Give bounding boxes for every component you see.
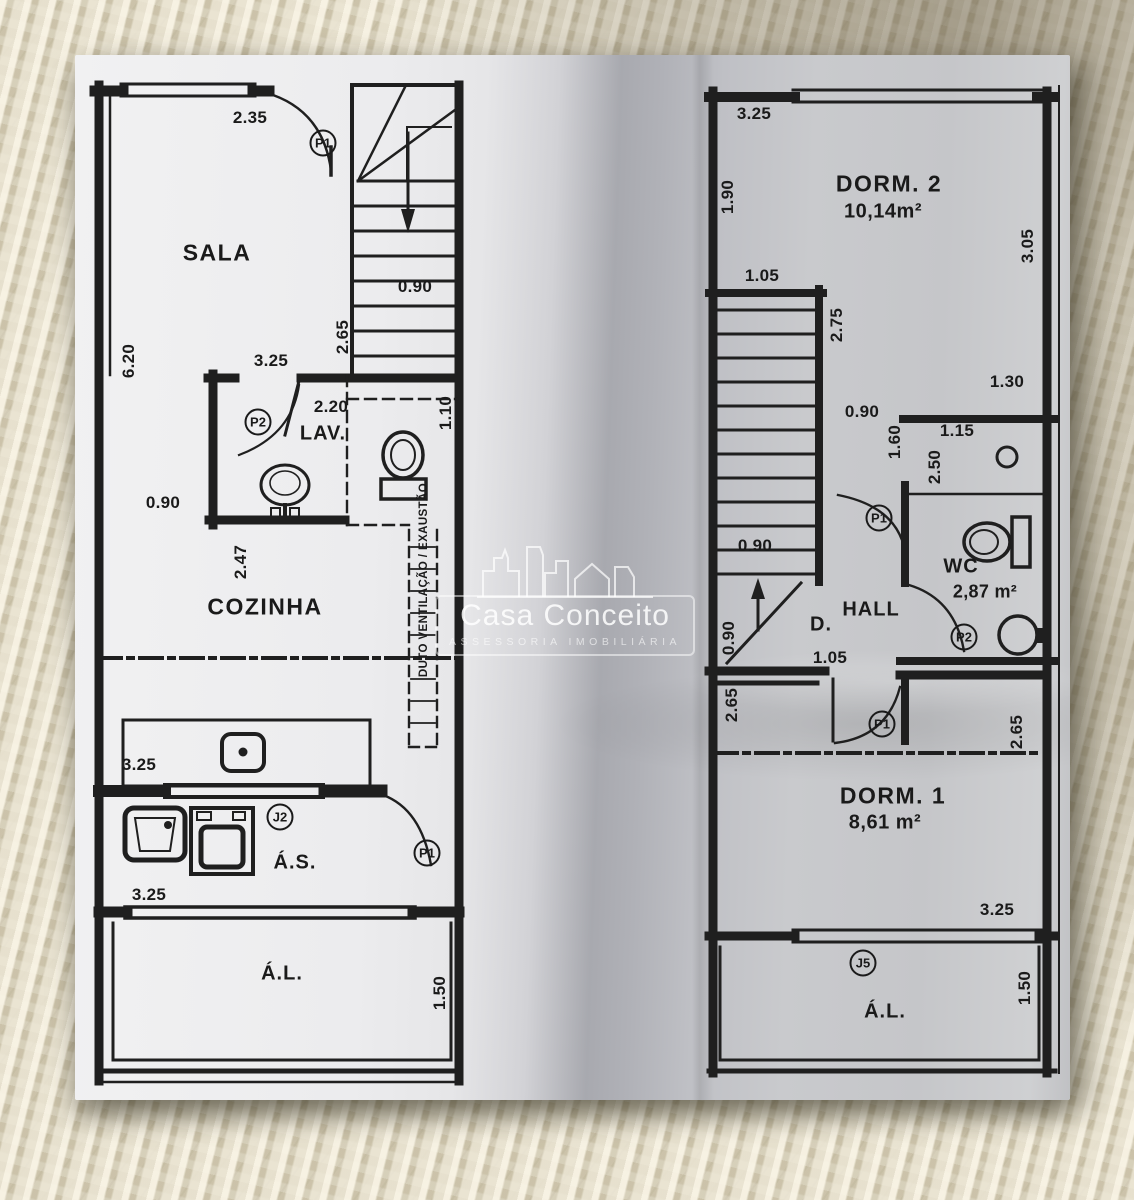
dim-sala-top: 2.35 (233, 108, 267, 128)
dim-lav-width: 2.20 (314, 397, 348, 417)
room-label-al: Á.L. (261, 963, 303, 986)
outer-walls (709, 85, 1059, 1073)
room-label-dorm1: DORM. 1 (840, 783, 946, 810)
stairs-down (352, 85, 459, 375)
watermark: Casa Conceito ASSESSORIA IMOBILIÁRIA (435, 535, 695, 656)
service-window (99, 907, 459, 918)
door-tag-p1: P1 (310, 130, 337, 157)
ground-floor-plan: 2.35 P1 SALA 0.90 2.65 3.25 6.20 2.20 P2… (85, 75, 470, 1090)
duct-label: DUTO VENTILAÇÃO / EXAUSTÃO (418, 483, 430, 677)
dim-wc-width: 1.15 (940, 421, 974, 441)
lav-sink-icon (261, 465, 309, 517)
skyline-icon (475, 535, 655, 599)
shower-icon (997, 447, 1017, 467)
stair-direction-arrow (751, 578, 765, 599)
service-wall (99, 785, 381, 797)
dim-dorm1-right: 2.65 (1007, 715, 1027, 749)
dim-sala-width: 3.25 (254, 351, 288, 371)
dim-dorm2-side: 3.05 (1018, 229, 1038, 263)
dim-sala-depth: 6.20 (119, 344, 139, 378)
upper-floor-plan: 3.25 1.90 DORM. 2 10,14m² 1.05 3.05 2.75… (703, 85, 1062, 1080)
dim-wc-entry: 1.60 (885, 425, 905, 459)
sala-window (121, 84, 255, 96)
wc-sink-icon (999, 616, 1048, 654)
room-label-dorm2: DORM. 2 (836, 171, 942, 198)
watermark-brand: Casa Conceito (449, 599, 681, 633)
dim-stair-run: 2.75 (827, 308, 847, 342)
dim-al-depth: 1.50 (430, 976, 450, 1010)
room-label-cozinha: COZINHA (207, 594, 322, 621)
dim-dorm1-width: 3.25 (980, 900, 1014, 920)
door-tag-p1-servico: P1 (414, 840, 441, 867)
watermark-box: Casa Conceito ASSESSORIA IMOBILIÁRIA (435, 595, 695, 656)
watermark-tagline: ASSESSORIA IMOBILIÁRIA (449, 636, 681, 648)
area-label-dorm2: 10,14m² (844, 201, 922, 224)
window-tag-j2: J2 (267, 804, 294, 831)
dim-servico-width: 3.25 (132, 885, 166, 905)
window-tag-j5: J5 (850, 950, 877, 977)
dim-hall-top: 0.90 (845, 402, 879, 422)
door-tag-p1-hall: P1 (866, 505, 893, 532)
kitchen-counter (123, 720, 370, 786)
dim-wc-depth: 2.50 (925, 450, 945, 484)
dim-duct-depth: 1.10 (436, 396, 456, 430)
area-label-dorm1: 8,61 m² (849, 812, 921, 835)
room-label-servico: Á.S. (274, 852, 317, 875)
dim-hall-width: 1.05 (813, 648, 847, 668)
floorplan-paper: 2.35 P1 SALA 0.90 2.65 3.25 6.20 2.20 P2… (75, 55, 1070, 1100)
ground-floor-drawing (85, 75, 470, 1090)
area-label-wc: 2,87 m² (953, 582, 1017, 603)
door-tag-p2: P2 (245, 409, 272, 436)
dim-stair-width: 0.90 (398, 277, 432, 297)
open-area-boundary (99, 923, 459, 1082)
dim-side-right: 1.30 (990, 372, 1024, 392)
room-label-lav: LAV. (300, 423, 346, 446)
dim-al-depth: 1.50 (1015, 971, 1035, 1005)
dorm2-window (793, 90, 1041, 102)
door-tag-p1-dorm1: P1 (869, 711, 896, 738)
outer-walls (95, 85, 459, 1081)
dim-cozinha-depth: 2.47 (231, 545, 251, 579)
dim-stair-width: 0.90 (738, 536, 772, 556)
dim-stair-top: 1.05 (745, 266, 779, 286)
washing-machine-icon (191, 808, 253, 874)
stair-direction-arrow (401, 209, 415, 233)
room-label-wc: WC (943, 556, 978, 579)
duct-label: D. (810, 614, 832, 637)
dim-dorm2-top: 3.25 (737, 104, 771, 124)
dim-stair-base: 0.90 (719, 621, 739, 655)
dim-passage: 0.90 (146, 493, 180, 513)
dim-dorm1-left: 2.65 (722, 688, 742, 722)
room-label-hall: HALL (842, 599, 899, 622)
door-tag-p2-wc: P2 (951, 624, 978, 651)
dim-dorm2-left: 1.90 (718, 180, 738, 214)
room-label-al: Á.L. (864, 1001, 906, 1024)
dim-stair-run: 2.65 (333, 320, 353, 354)
dim-cozinha-width: 3.25 (122, 755, 156, 775)
dorm1-window (709, 930, 1055, 942)
room-label-sala: SALA (183, 240, 252, 267)
laundry-tub-icon (125, 808, 185, 860)
